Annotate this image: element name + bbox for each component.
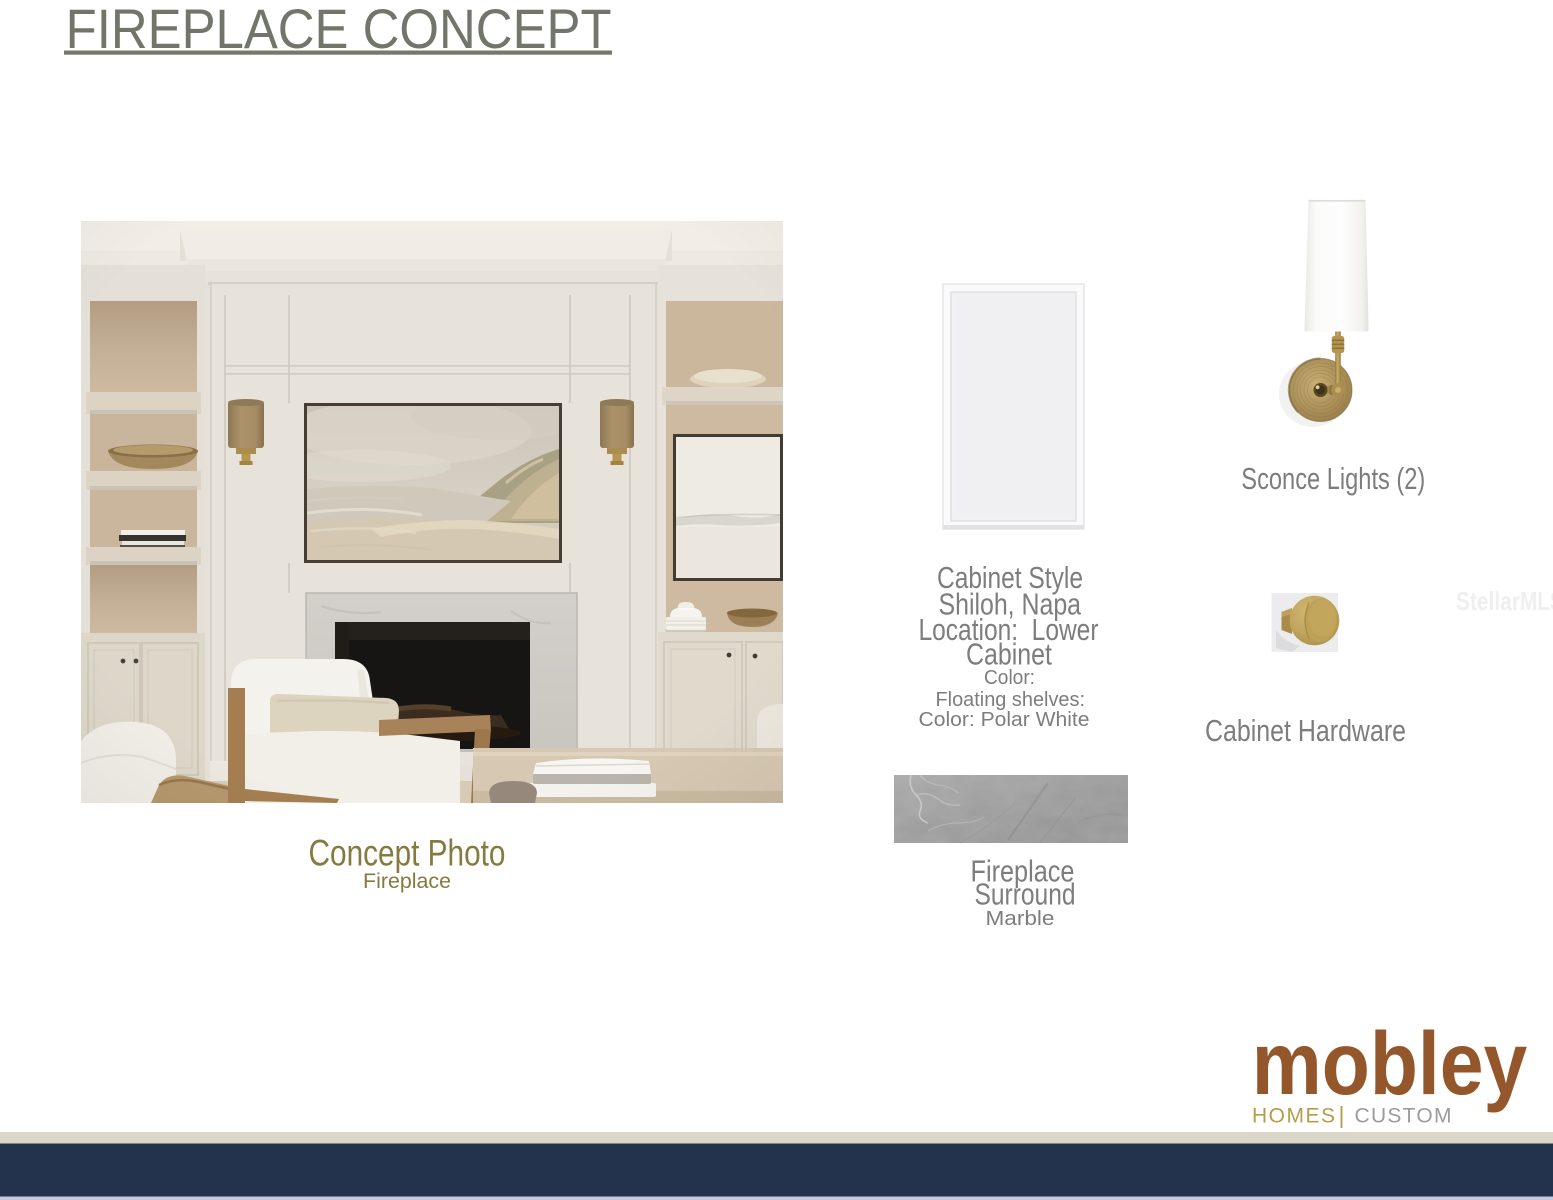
svg-text:Concept Photo: Concept Photo: [309, 833, 506, 874]
svg-text:Fireplace: Fireplace: [363, 870, 451, 893]
svg-text:Cabinet Hardware: Cabinet Hardware: [1205, 713, 1406, 748]
svg-text:|: |: [1339, 1102, 1345, 1128]
svg-text:Marble: Marble: [986, 907, 1055, 930]
svg-text:CUSTOM: CUSTOM: [1355, 1105, 1452, 1128]
svg-text:Color:: Color:: [984, 666, 1035, 689]
svg-text:Color: Polar White: Color: Polar White: [919, 708, 1090, 731]
svg-text:mobley: mobley: [1252, 1013, 1528, 1113]
svg-text:StellarMLS: StellarMLS: [1456, 586, 1553, 616]
svg-text:HOMES: HOMES: [1252, 1105, 1335, 1128]
svg-text:Sconce Lights (2): Sconce Lights (2): [1241, 461, 1425, 496]
